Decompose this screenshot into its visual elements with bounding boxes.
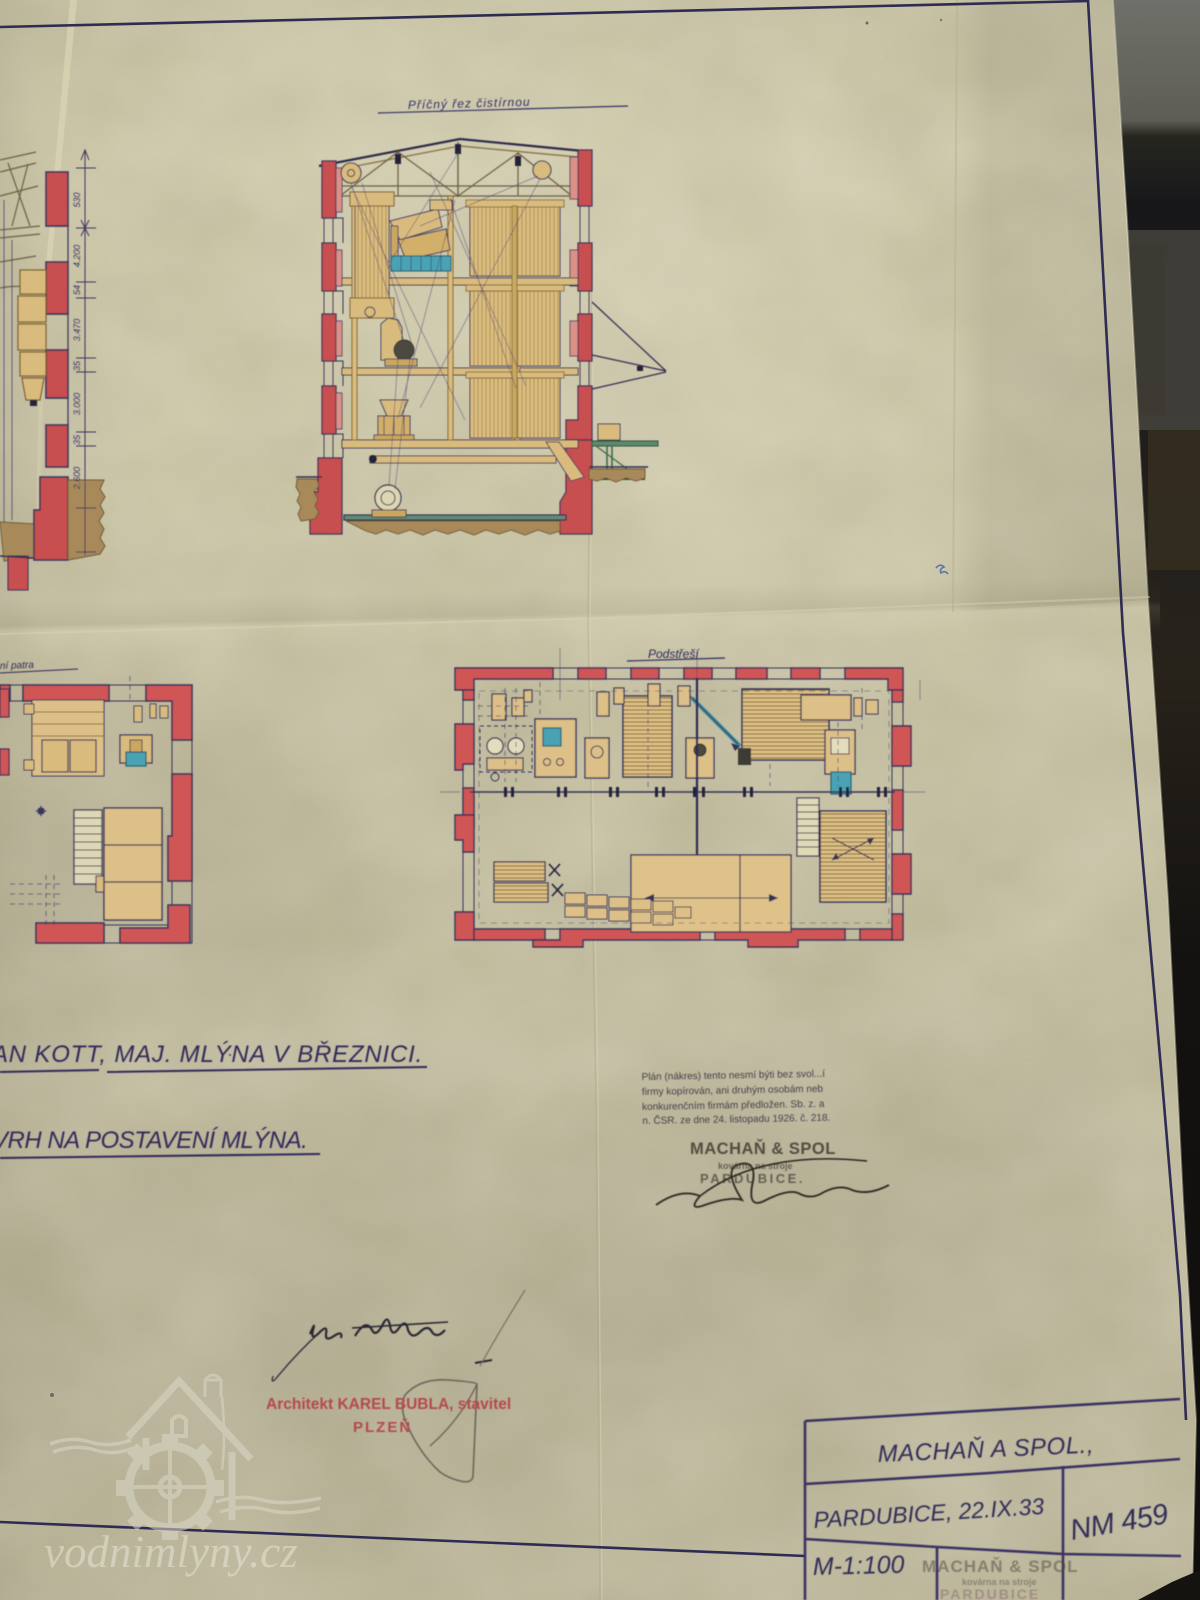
svg-text:54: 54: [72, 285, 82, 295]
svg-text:3.000: 3.000: [72, 393, 82, 416]
svg-text:PARDUBICE: PARDUBICE: [940, 1586, 1040, 1600]
svg-text:2.600: 2.600: [72, 467, 82, 491]
svg-text:MACHAŇ & SPOL: MACHAŇ & SPOL: [922, 1557, 1079, 1576]
svg-text:vodnimlyny.cz: vodnimlyny.cz: [44, 1527, 298, 1577]
svg-text:ní patra: ní patra: [0, 660, 34, 672]
svg-text:35: 35: [72, 434, 82, 445]
svg-text:VRH NA POSTAVENÍ MLÝNA.: VRH NA POSTAVENÍ MLÝNA.: [0, 1127, 307, 1154]
svg-text:MACHAŇ & SPOL: MACHAŇ & SPOL: [690, 1139, 836, 1158]
svg-text:4.200: 4.200: [72, 245, 82, 268]
svg-text:530: 530: [72, 192, 82, 207]
svg-text:PLZEŇ: PLZEŇ: [353, 1418, 412, 1436]
svg-text:3.470: 3.470: [72, 319, 82, 342]
svg-text:Architekt KAREL BUBLA, stavite: Architekt KAREL BUBLA, stavitel: [266, 1396, 511, 1413]
svg-text:AN KOTT, MAJ. MLÝNA V BŘEZNIC: AN KOTT, MAJ. MLÝNA V BŘEZNICI.: [0, 1041, 423, 1068]
svg-text:M-1:100: M-1:100: [812, 1551, 905, 1581]
svg-text:35: 35: [72, 360, 82, 371]
